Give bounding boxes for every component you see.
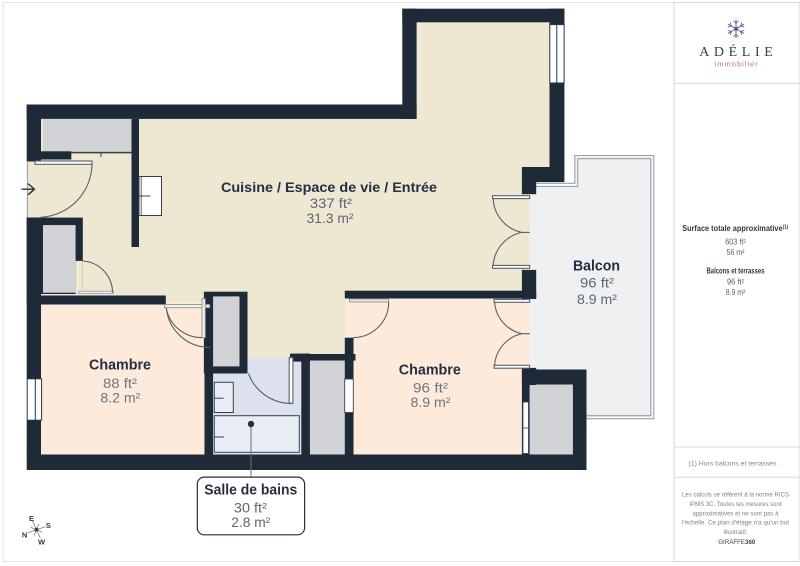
svg-text:immobilier: immobilier — [715, 59, 759, 68]
svg-text:l'échelle. Ce plan d'étage n'a: l'échelle. Ce plan d'étage n'a qu'un but — [682, 520, 789, 527]
svg-text:W: W — [38, 538, 46, 547]
svg-text:(1) Hors balcons et terrasses: (1) Hors balcons et terrasses — [689, 461, 777, 468]
svg-text:96 ft²: 96 ft² — [727, 277, 744, 287]
svg-text:31.3 m²: 31.3 m² — [307, 211, 355, 226]
svg-text:IPMS 3C. Toutes les mesures so: IPMS 3C. Toutes les mesures sont — [690, 501, 782, 508]
svg-text:8.9 m²: 8.9 m² — [577, 292, 618, 307]
svg-text:GIRAFFE360: GIRAFFE360 — [718, 539, 756, 546]
svg-text:Chambre: Chambre — [89, 357, 151, 374]
svg-text:Surface totale approximative(1: Surface totale approximative(1) — [682, 224, 788, 233]
svg-text:56 m²: 56 m² — [727, 247, 745, 257]
svg-text:Salle de bains: Salle de bains — [204, 482, 297, 499]
svg-text:8.9 m²: 8.9 m² — [411, 395, 452, 410]
svg-text:S: S — [46, 521, 51, 530]
svg-text:Chambre: Chambre — [399, 362, 461, 379]
svg-text:Les calculs se réfèrent à la n: Les calculs se réfèrent à la norme RICS — [682, 492, 790, 499]
svg-text:96 ft²: 96 ft² — [413, 381, 449, 396]
svg-text:approximatives et ne sont pas: approximatives et ne sont pas à — [693, 510, 779, 517]
svg-text:8.2 m²: 8.2 m² — [100, 391, 141, 406]
svg-text:337 ft²: 337 ft² — [310, 196, 353, 211]
svg-text:Balcon: Balcon — [573, 258, 620, 275]
svg-text:88 ft²: 88 ft² — [103, 376, 138, 391]
svg-text:2.8 m²: 2.8 m² — [231, 515, 271, 530]
svg-text:96 ft²: 96 ft² — [580, 276, 615, 291]
svg-text:ADÉLIE: ADÉLIE — [699, 43, 777, 60]
svg-text:30 ft²: 30 ft² — [234, 501, 268, 516]
svg-text:E: E — [29, 514, 34, 523]
svg-text:Balcons et terrasses: Balcons et terrasses — [707, 267, 766, 276]
svg-text:illustratif.: illustratif. — [724, 529, 748, 536]
svg-text:Cuisine / Espace de vie / Entr: Cuisine / Espace de vie / Entrée — [221, 179, 437, 195]
svg-text:N: N — [22, 531, 27, 540]
svg-text:8.9 m²: 8.9 m² — [726, 287, 746, 297]
svg-text:603 ft²: 603 ft² — [725, 237, 746, 247]
